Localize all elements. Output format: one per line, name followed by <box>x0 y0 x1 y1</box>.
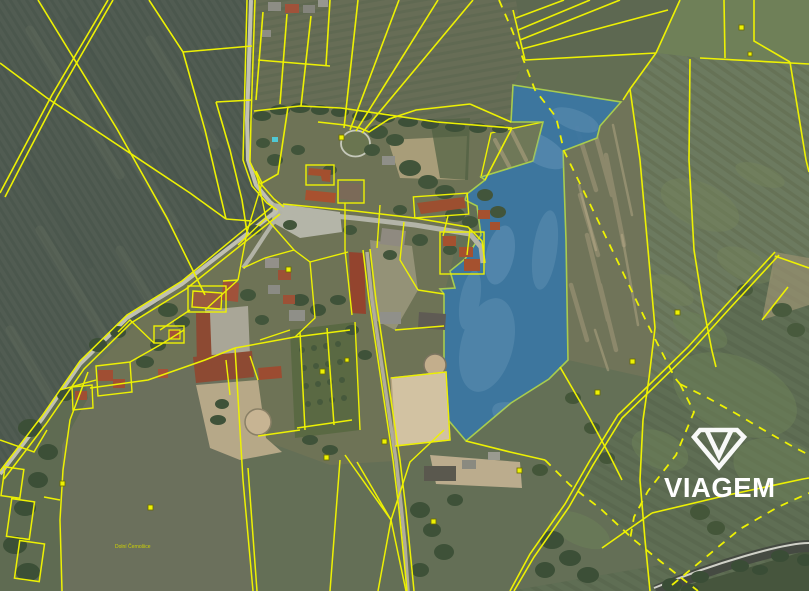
svg-text:VIAGEM: VIAGEM <box>664 472 775 503</box>
svg-text:Dolní Černošice: Dolní Černošice <box>115 543 151 550</box>
